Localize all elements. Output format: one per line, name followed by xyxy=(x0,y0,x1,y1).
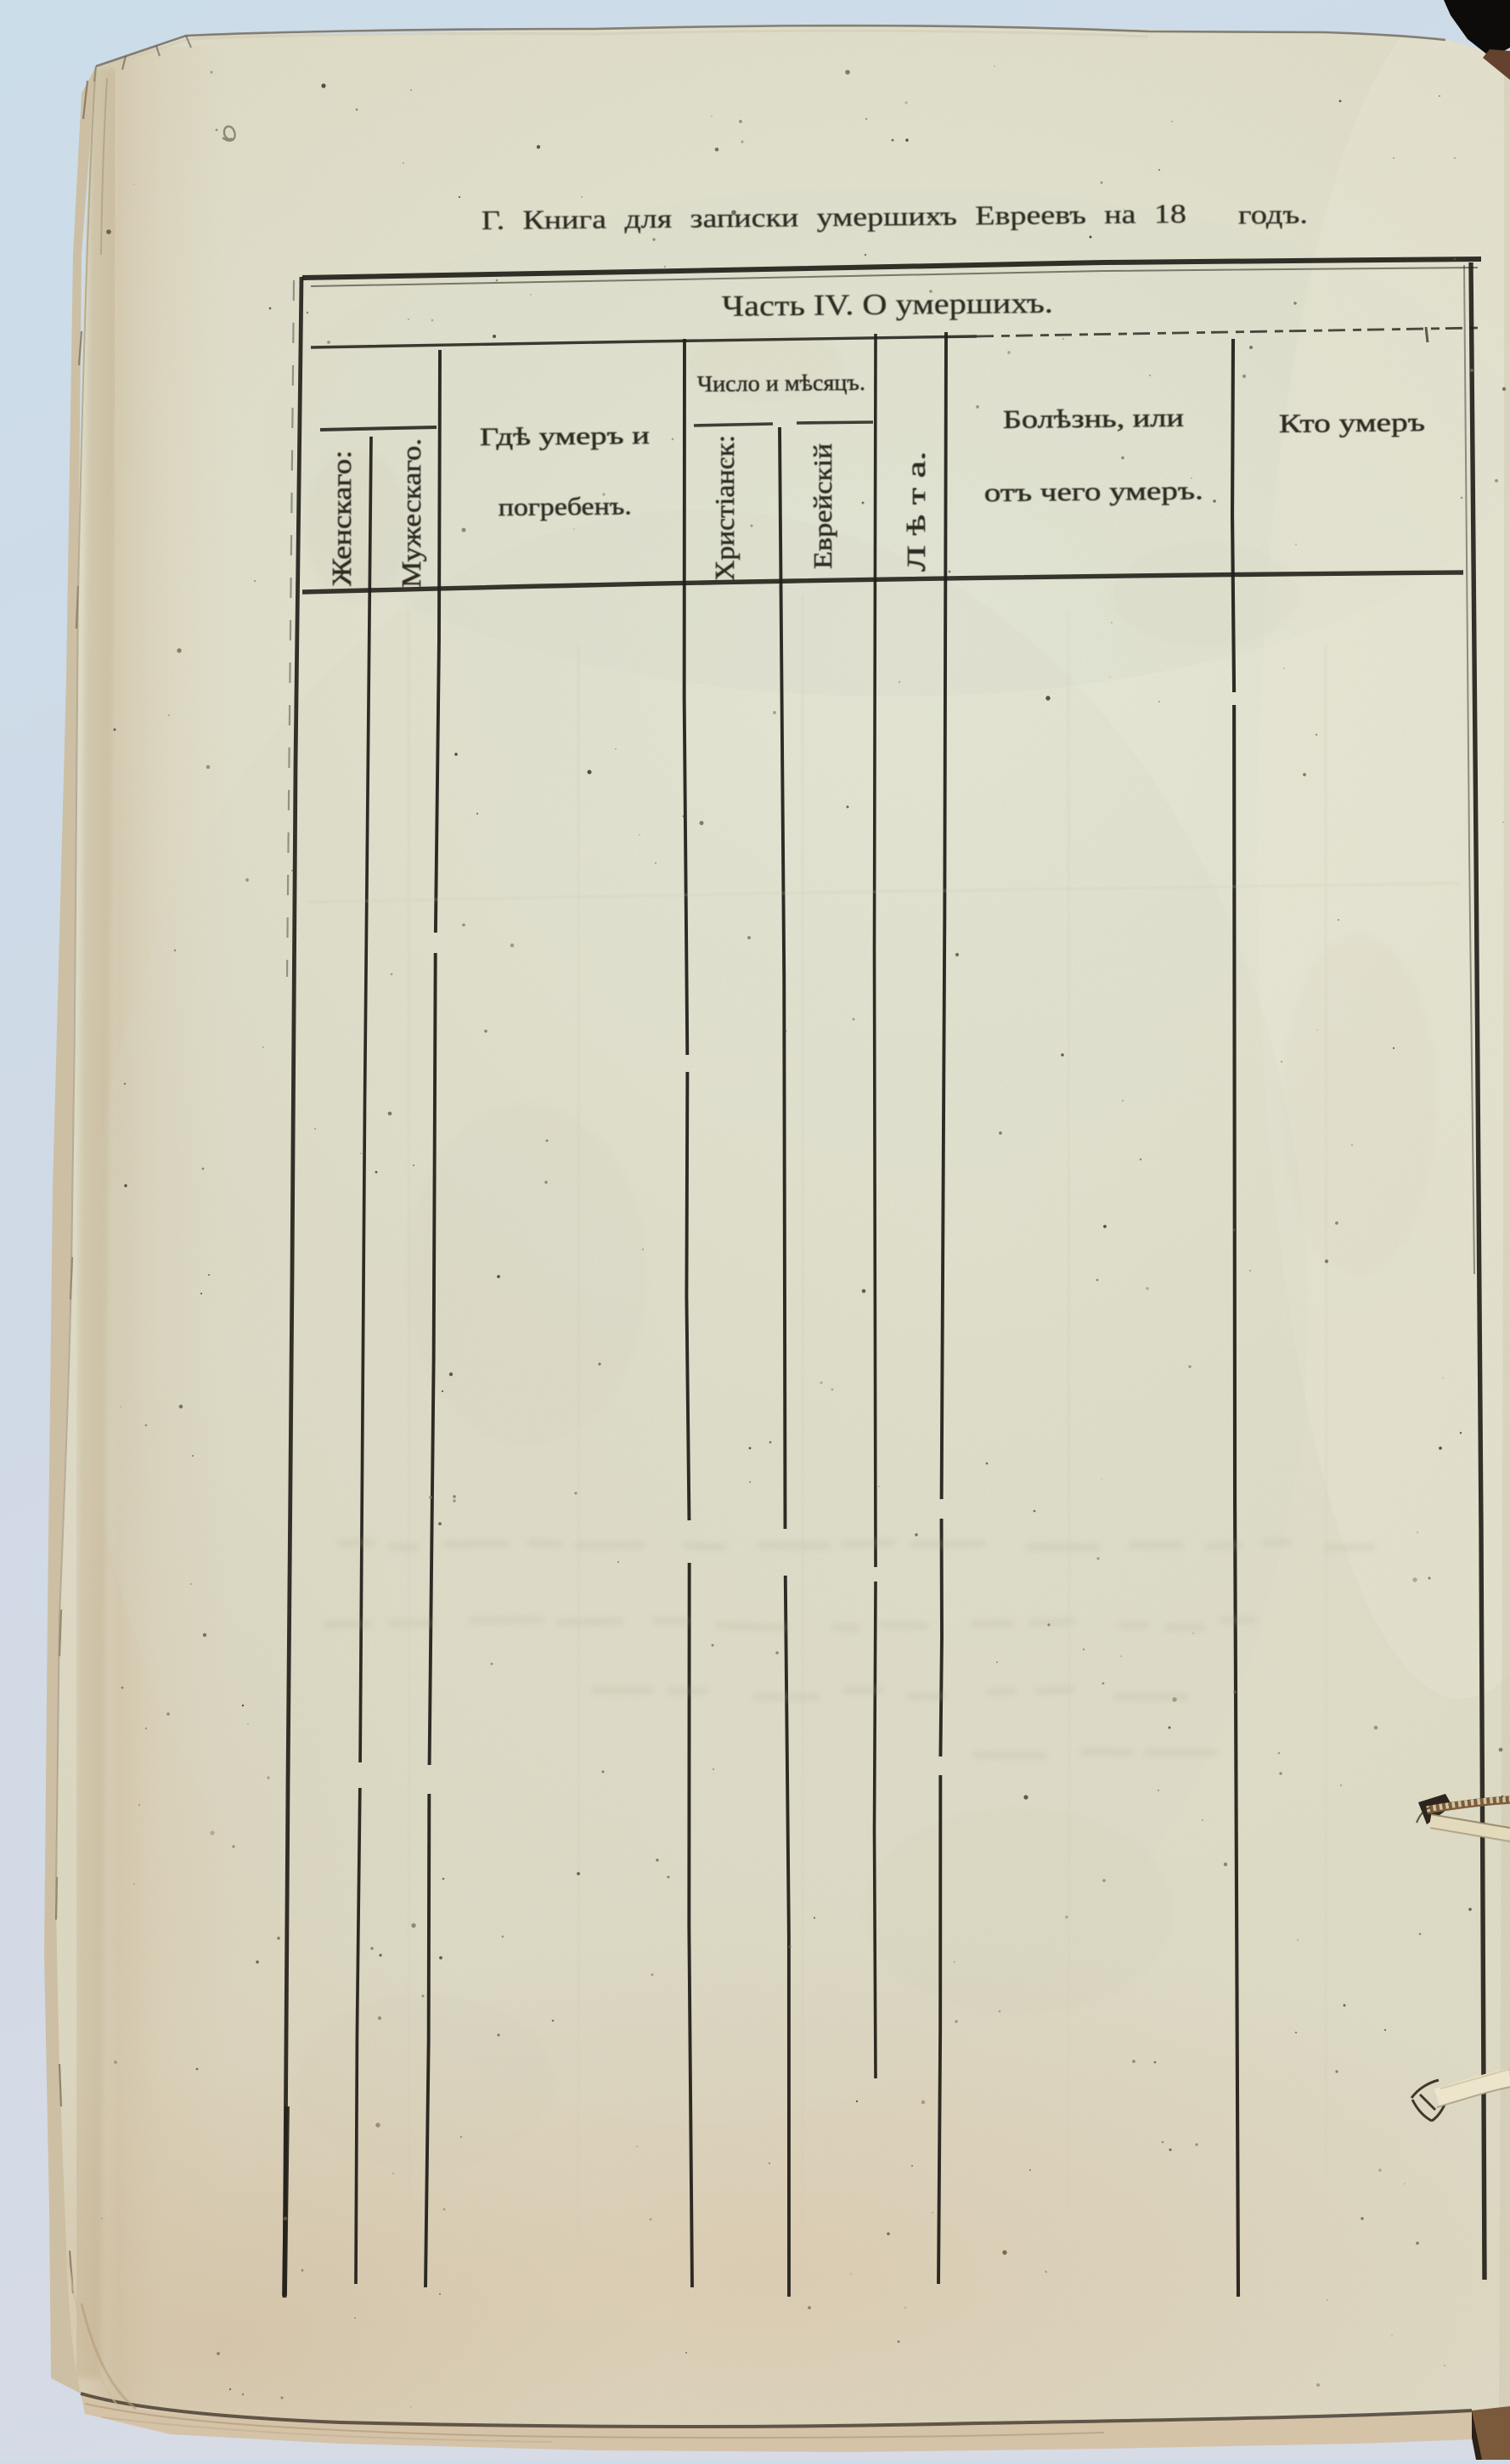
svg-text:Часть IV. О умершихъ.: Часть IV. О умершихъ. xyxy=(722,286,1053,323)
svg-text:Женскаго:: Женскаго: xyxy=(326,450,357,586)
svg-text:Еврейскій: Еврейскій xyxy=(808,443,837,569)
svg-text:отъ чего умеръ.: отъ чего умеръ. xyxy=(984,476,1203,508)
svg-text:Христіанск:: Христіанск: xyxy=(709,435,740,581)
svg-text:Гдѣ умеръ и: Гдѣ умеръ и xyxy=(480,421,650,451)
svg-text:погребенъ.: погребенъ. xyxy=(499,492,632,522)
svg-text:Болѣзнь, или: Болѣзнь, или xyxy=(1003,403,1184,434)
svg-text:Кто умеръ: Кто умеръ xyxy=(1279,407,1425,438)
svg-text:Мужескаго.: Мужескаго. xyxy=(396,438,426,588)
svg-text:Число и мѣсяцъ.: Число и мѣсяцъ. xyxy=(697,369,865,397)
svg-text:годъ.: годъ. xyxy=(1238,199,1308,230)
svg-text:Л ѣ т а.: Л ѣ т а. xyxy=(901,451,931,572)
